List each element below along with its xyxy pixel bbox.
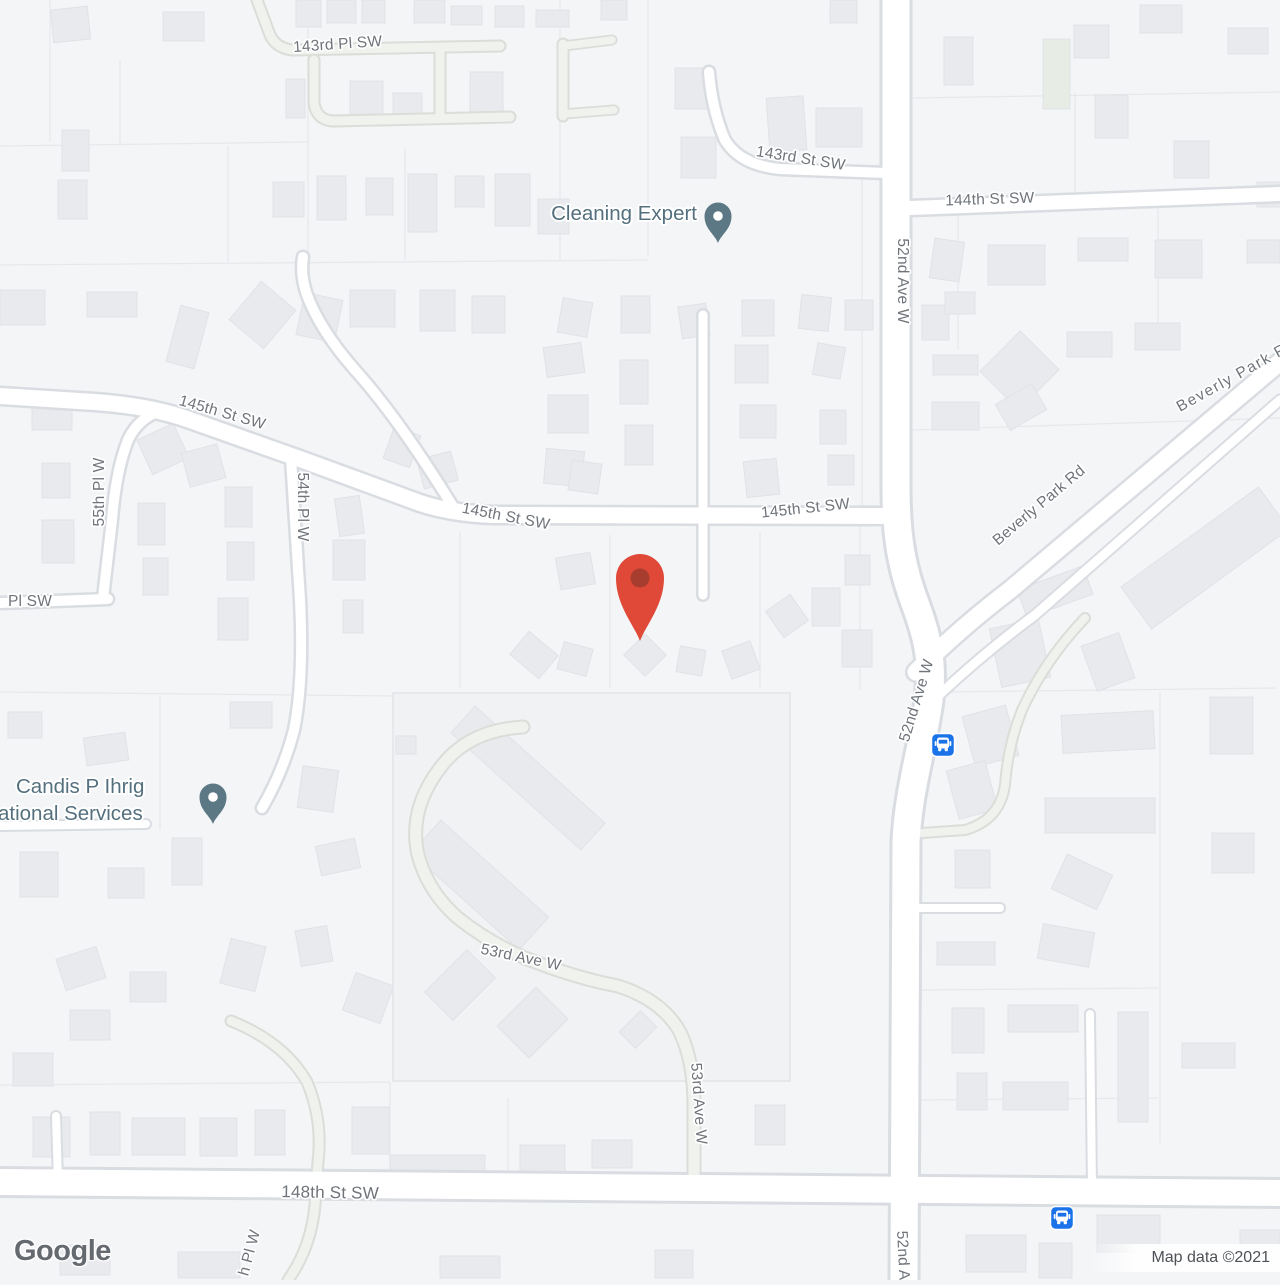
road-label-pl-sw-partial: Pl SW bbox=[8, 593, 52, 610]
bus-stop-icon-north[interactable] bbox=[932, 734, 955, 757]
road-label-54th-pl-w: 54th Pl W bbox=[294, 473, 311, 542]
poi-label-cleaning-expert[interactable]: Cleaning Expert bbox=[551, 202, 697, 225]
road-label-55th-pl-w: 55th Pl W bbox=[91, 457, 108, 526]
road-label-148th-st-sw: 148th St SW bbox=[281, 1182, 379, 1203]
poi-label-candis-line1[interactable]: Candis P Ihrig bbox=[16, 775, 144, 798]
map-data-attribution: Map data ©2021 bbox=[1091, 1244, 1280, 1272]
road-label-52nd-ave-w-bottom: 52nd Ave W bbox=[893, 1230, 914, 1280]
google-logo[interactable]: Google bbox=[14, 1235, 111, 1268]
road-label-144th-st-sw: 144th St SW bbox=[945, 189, 1035, 209]
road-label-52nd-ave-w-top: 52nd Ave W bbox=[894, 238, 911, 323]
map-canvas[interactable]: 143rd Pl SW 143rd St SW 144th St SW 52nd… bbox=[0, 0, 1280, 1280]
poi-label-candis-line2[interactable]: ational Services bbox=[0, 802, 143, 825]
bus-stop-icon-south[interactable] bbox=[1051, 1207, 1074, 1230]
